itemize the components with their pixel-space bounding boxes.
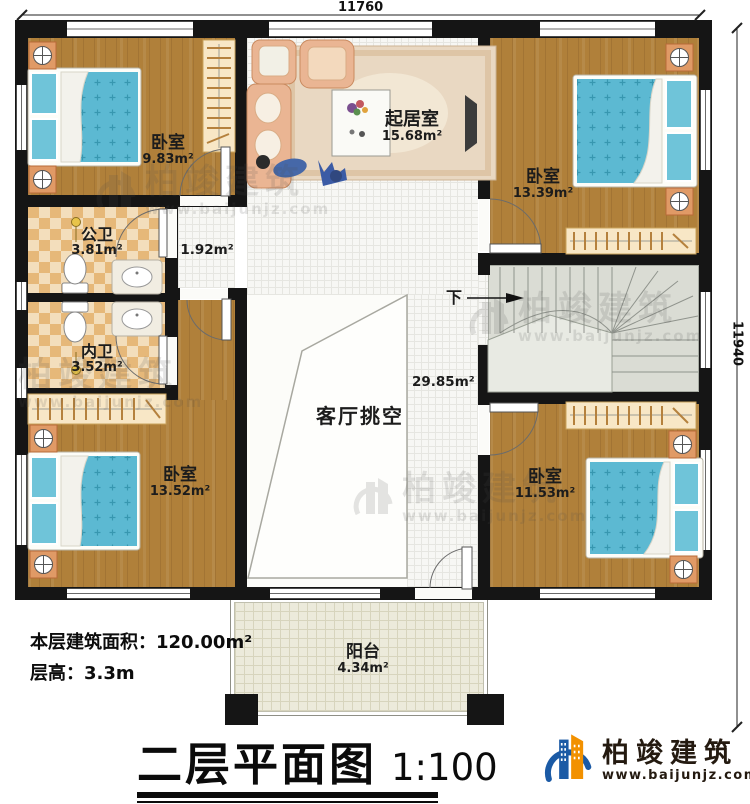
label-void-area: 29.85m² [412, 374, 475, 390]
label-stairs-down: 下 [446, 284, 462, 308]
void-outline [248, 295, 407, 578]
label-void: 客厅挑空 [316, 405, 404, 427]
label-bedroom-bl: 卧室 13.52m² [150, 466, 210, 500]
label-hallway-area: 1.92m² [180, 242, 233, 258]
title-underline-thin [137, 801, 438, 803]
title-scale: 1:100 [391, 746, 498, 789]
wardrobe-bedroom-bl [28, 394, 166, 424]
label-living-room: 起居室 15.68m² [382, 110, 442, 145]
plan-notes: 本层建筑面积：120.00m² 层高：3.3m [30, 628, 252, 689]
wardrobe-bedroom-br [566, 402, 696, 429]
brand-name: 柏竣建筑 [602, 739, 750, 769]
title-block: 二层平面图1:100 [137, 728, 498, 793]
toilet-public [62, 254, 88, 293]
sink-public [112, 260, 162, 294]
brand-logo-icon [540, 731, 592, 791]
brand-logo: 柏竣建筑 www.baijunjz.com [540, 731, 750, 791]
bed-bedroom-tl [28, 68, 141, 166]
note-floor-area: 本层建筑面积：120.00m² [30, 628, 252, 659]
dimension-right: 11940 [730, 319, 745, 369]
label-bedroom-tr: 卧室 13.39m² [513, 168, 573, 202]
label-balcony: 阳台 4.34m² [337, 643, 388, 677]
wardrobe-bedroom-tl [203, 40, 235, 152]
label-private-bath: 内卫 3.52m² [71, 343, 122, 375]
bed-bedroom-tr [573, 75, 697, 187]
toilet-private [62, 302, 88, 342]
stairs [488, 267, 698, 392]
bed-bedroom-bl [28, 452, 140, 550]
title-underline-thick [137, 792, 438, 798]
label-public-bath: 公卫 3.81m² [71, 226, 122, 258]
dimension-top: 11760 [338, 0, 383, 15]
stairs-down-arrow [467, 293, 524, 303]
wardrobe-bedroom-tr [566, 228, 696, 254]
label-bedroom-tl: 卧室 9.83m² [142, 134, 193, 168]
floor-plan-page: 柏竣建筑 www.baijunjz.com 柏竣建筑 www.baijunjz.… [0, 0, 750, 804]
page-title: 二层平面图 [137, 738, 377, 791]
tv [465, 95, 477, 152]
note-floor-height: 层高：3.3m [30, 659, 252, 690]
label-bedroom-br: 卧室 11.53m² [515, 468, 575, 502]
sink-private [112, 302, 162, 336]
bed-bedroom-br [586, 458, 703, 558]
brand-url: www.baijunjz.com [602, 768, 750, 783]
